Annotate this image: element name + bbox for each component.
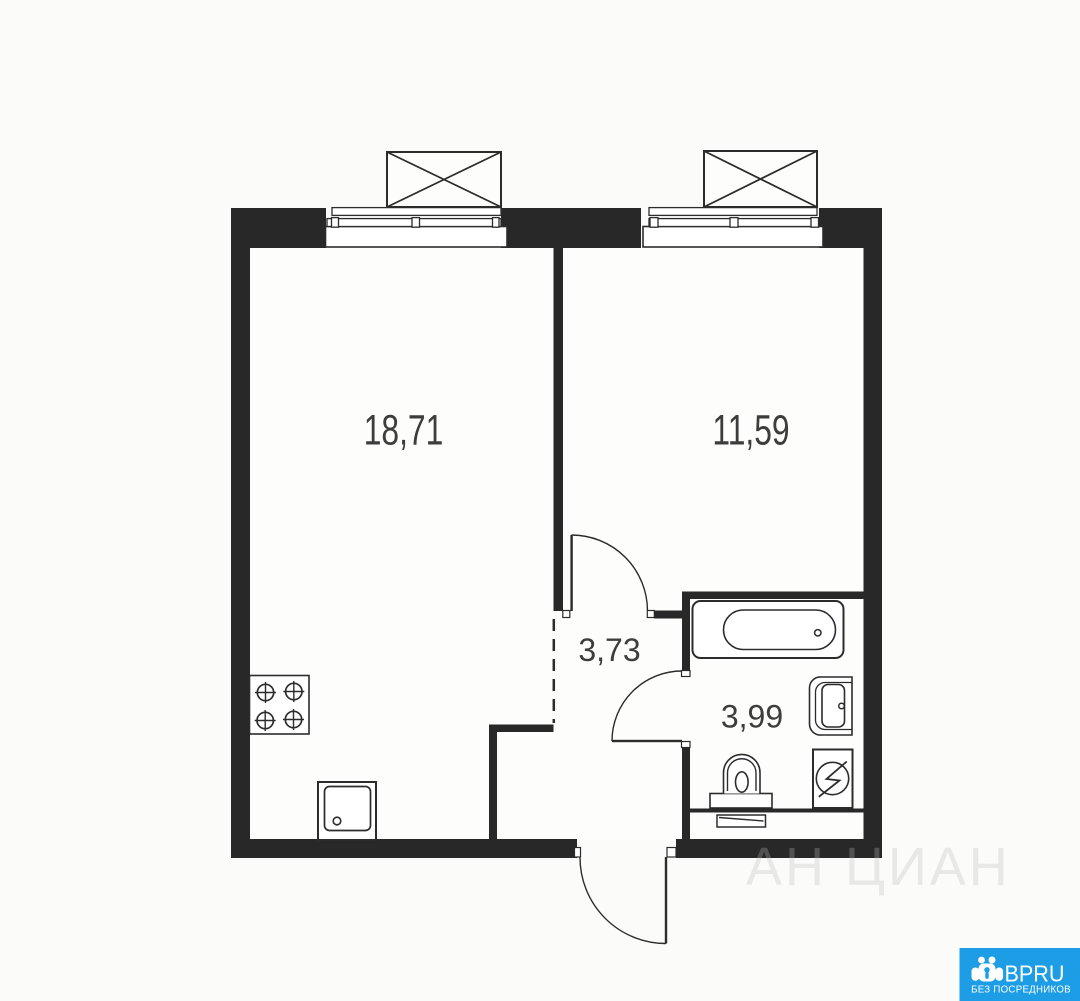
svg-text:BPRU: BPRU (1004, 961, 1064, 987)
svg-text:18,71: 18,71 (364, 407, 444, 455)
svg-text:АН ЦИАН: АН ЦИАН (746, 837, 1011, 897)
svg-text:3,99: 3,99 (721, 699, 783, 735)
svg-text:3,73: 3,73 (578, 632, 640, 668)
svg-text:БЕЗ ПОСРЕДНИКОВ: БЕЗ ПОСРЕДНИКОВ (971, 984, 1071, 995)
svg-text:11,59: 11,59 (712, 407, 789, 455)
